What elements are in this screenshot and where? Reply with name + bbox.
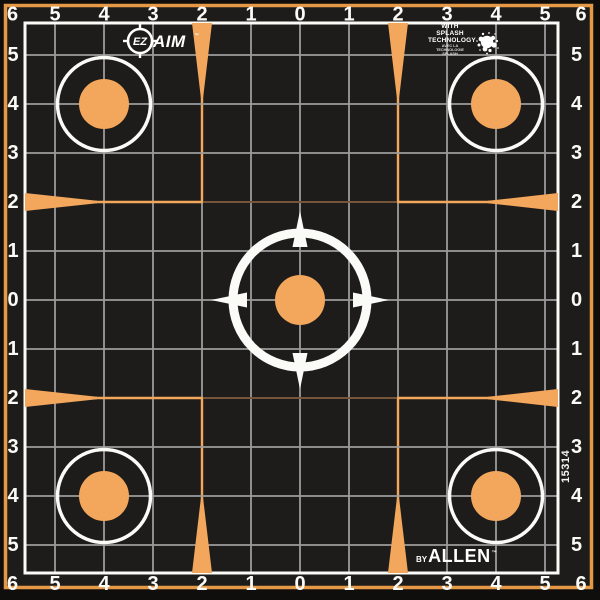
axis-label-right: 2 (571, 387, 582, 409)
splash-technology-block: WITH SPLASH TECHNOLOGY AVEC LA TECHNOLOG… (428, 23, 503, 58)
axis-label-top: 5 (539, 4, 550, 26)
axis-label-bottom: 6 (7, 573, 18, 595)
target-graphics: 6655443322110011223344556655443322110011… (0, 0, 600, 600)
corner-bull-center (471, 471, 521, 521)
axis-label-bottom: 3 (441, 573, 452, 595)
axis-label-bottom: 6 (575, 573, 586, 595)
axis-label-left: 5 (7, 44, 18, 66)
ezaim-logo: EZ AIM ™ (122, 21, 212, 61)
axis-label-top: 2 (392, 4, 403, 26)
axis-label-right: 5 (571, 44, 582, 66)
axis-label-bottom: 3 (147, 573, 158, 595)
splash-line-3: AVEC LA TECHNOLOGIE (428, 44, 472, 52)
allen-logo: BY ALLEN ™ (416, 546, 497, 567)
axis-label-bottom: 5 (49, 573, 60, 595)
axis-label-left: 5 (7, 534, 18, 556)
axis-label-right: 1 (571, 240, 582, 262)
axis-label-right: 1 (571, 338, 582, 360)
axis-label-left: 0 (7, 289, 18, 311)
ezaim-aim-text: AIM (152, 32, 186, 51)
axis-label-top: 1 (343, 4, 354, 26)
axis-label-top: 0 (294, 4, 305, 26)
axis-label-right: 4 (571, 93, 583, 115)
allen-trademark: ™ (492, 550, 497, 556)
splash-technology-text: WITH SPLASH TECHNOLOGY AVEC LA TECHNOLOG… (428, 23, 472, 58)
axis-label-left: 3 (7, 436, 18, 458)
ezaim-ez-text: EZ (133, 36, 148, 48)
axis-label-bottom: 4 (98, 573, 110, 595)
sight-in-target-sheet: 6655443322110011223344556655443322110011… (0, 0, 600, 600)
axis-label-bottom: 1 (343, 573, 354, 595)
axis-label-right: 3 (571, 142, 582, 164)
axis-label-bottom: 1 (245, 573, 256, 595)
axis-label-left: 1 (7, 338, 18, 360)
axis-label-left: 3 (7, 142, 18, 164)
corner-bull-center (79, 471, 129, 521)
axis-label-left: 2 (7, 191, 18, 213)
axis-label-left: 2 (7, 387, 18, 409)
splash-line-1: WITH SPLASH (428, 23, 472, 37)
axis-label-top: 4 (98, 4, 110, 26)
axis-label-right: 0 (571, 289, 582, 311)
axis-label-right: 4 (571, 485, 583, 507)
axis-label-bottom: 0 (294, 573, 305, 595)
axis-label-top: 5 (49, 4, 60, 26)
allen-by-text: BY (416, 555, 427, 564)
axis-label-bottom: 2 (392, 573, 403, 595)
axis-label-bottom: 4 (490, 573, 502, 595)
splash-line-2: TECHNOLOGY (428, 37, 472, 44)
axis-label-top: 1 (245, 4, 256, 26)
sku-number: 15314 (560, 449, 572, 483)
splash-line-4: SPLASH (428, 52, 472, 56)
axis-label-left: 4 (7, 93, 19, 115)
axis-label-bottom: 2 (196, 573, 207, 595)
ezaim-trademark: ™ (194, 33, 199, 39)
axis-label-left: 4 (7, 485, 19, 507)
axis-label-right: 3 (571, 436, 582, 458)
corner-bull-center (471, 79, 521, 129)
corner-bull-center (79, 79, 129, 129)
allen-name-text: ALLEN (428, 546, 491, 567)
axis-label-right: 5 (571, 534, 582, 556)
axis-label-right: 2 (571, 191, 582, 213)
axis-label-top: 6 (575, 4, 586, 26)
axis-label-left: 1 (7, 240, 18, 262)
center-bull-dot (275, 275, 325, 325)
axis-label-top: 6 (7, 4, 18, 26)
paint-splash-icon (473, 28, 503, 58)
axis-label-bottom: 5 (539, 573, 550, 595)
